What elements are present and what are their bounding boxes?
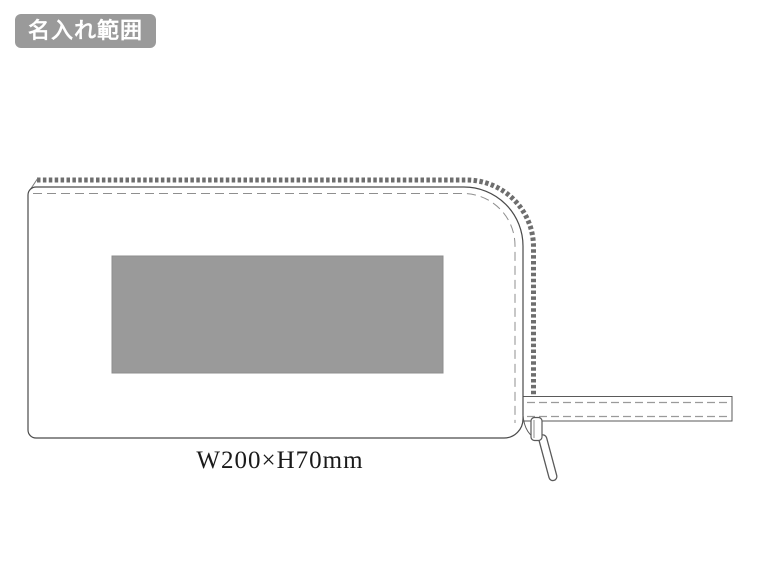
print-size-label: W200×H70mm: [170, 447, 390, 475]
pouch-illustration: [0, 0, 760, 570]
zipper-tape-extension: [523, 397, 732, 422]
print-area-rect: [112, 256, 443, 373]
zipper-slider-body: [531, 418, 542, 441]
zipper-tape-outline: [523, 397, 732, 422]
zipper-pull: [538, 434, 558, 481]
page: 名入れ範囲 W200×H70mm: [0, 0, 760, 570]
zipper-slider: [531, 418, 542, 441]
